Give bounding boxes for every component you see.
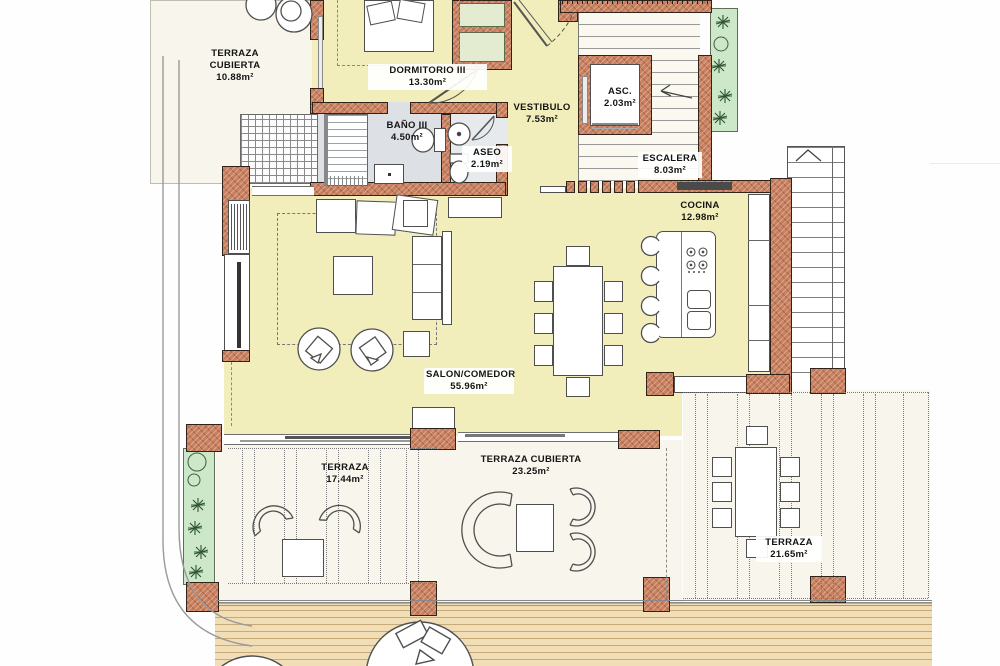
- threshold-vestibulo: [540, 186, 566, 193]
- dining-chair-w3: [534, 345, 553, 366]
- deck-wood: [215, 602, 932, 666]
- room-name: TERRAZA: [310, 462, 380, 474]
- sliding-door-leaf-1: [285, 436, 410, 439]
- exterior-stairs-rail: [832, 146, 833, 380]
- room-area: 12.98m²: [666, 212, 734, 224]
- deck-line: [242, 450, 243, 583]
- room-area: 4.50m²: [372, 132, 442, 144]
- wall-bath-north-a: [312, 102, 388, 114]
- pillar-terraza-este-n2: [810, 368, 846, 394]
- room-area: 8.03m²: [640, 165, 700, 177]
- outdoor-chair-w2: [712, 482, 732, 502]
- room-name: TERRAZA CUBIERTA: [470, 454, 592, 466]
- pergola-grid: [240, 114, 318, 184]
- floor-terrazas-sur: [216, 440, 682, 602]
- room-name: SALON/COMEDOR: [426, 369, 512, 381]
- island-sink-1: [687, 290, 711, 309]
- terraza-este-dashed-west: [666, 448, 667, 598]
- pier-salon-south-1: [410, 428, 456, 450]
- dining-chair-w1: [534, 281, 553, 302]
- room-label-bano: BAÑO III 4.50m²: [372, 120, 442, 144]
- wall-cocina-south-block: [646, 372, 674, 396]
- room-label-escalera: ESCALERA 8.03m²: [638, 152, 702, 178]
- room-name: VESTIBULO: [508, 102, 576, 114]
- sink-bano-drain: [388, 173, 391, 176]
- sofa-east-back: [442, 231, 452, 325]
- pillar-terrace-nw: [186, 424, 222, 452]
- room-name: BAÑO III: [372, 120, 442, 132]
- pier-comb-3: [590, 181, 599, 193]
- room-name: ESCALERA: [640, 153, 700, 165]
- room-label-aseo: ASEO 2.19m²: [462, 146, 512, 172]
- island-divider: [681, 232, 682, 337]
- room-label-dormitorio: DORMITORIO III 13.30m²: [368, 64, 487, 90]
- elevator-door-line-2: [592, 128, 638, 129]
- dining-chair-w2: [534, 313, 553, 334]
- room-area: 13.30m²: [370, 77, 485, 89]
- room-area: 2.19m²: [464, 159, 510, 171]
- room-label-ascensor: ASC. 2.03m²: [598, 86, 642, 110]
- room-name: ASEO: [464, 147, 510, 159]
- elevator-guide: [582, 76, 588, 124]
- island-sink-2: [687, 311, 711, 330]
- outdoor-chair-w1: [712, 457, 732, 477]
- dining-chair-e3: [604, 345, 623, 366]
- deck-edge-line: [215, 605, 932, 606]
- outdoor-dining-table: [735, 447, 777, 537]
- counter-cocina-east: [748, 194, 770, 372]
- pier-comb-5: [614, 181, 623, 193]
- dining-chair-e2: [604, 313, 623, 334]
- elevator-door-line-1: [592, 123, 638, 125]
- pier-comb-1: [566, 181, 575, 193]
- room-area: 2.03m²: [598, 98, 642, 110]
- dining-chair-e1: [604, 281, 623, 302]
- pier-comb-4: [602, 181, 611, 193]
- room-area: 55.96m²: [426, 381, 512, 393]
- planter-left: [183, 448, 215, 585]
- room-area: 7.53m²: [508, 114, 576, 126]
- terrace-table-c: [516, 504, 554, 552]
- sliding-door-leaf-2: [240, 440, 410, 442]
- closet-1: [459, 3, 505, 27]
- sideboard-salon-south: [412, 407, 455, 430]
- sofa-east: [412, 236, 442, 320]
- chimney-line: [237, 262, 241, 348]
- terrace-table-w: [282, 539, 324, 577]
- deck-line: [406, 450, 407, 583]
- deck-line: [863, 394, 864, 598]
- outdoor-chair-e2: [780, 482, 800, 502]
- page-fold-line: [930, 163, 1000, 164]
- room-label-cocina: COCINA 12.98m²: [666, 200, 734, 224]
- pier-salon-south-2: [618, 430, 660, 449]
- outdoor-chair-n: [746, 426, 768, 445]
- deck-line: [707, 394, 708, 598]
- wall-cocina-east: [770, 178, 792, 394]
- deck-line: [903, 394, 904, 598]
- room-area: 10.88m²: [192, 72, 278, 84]
- wall-top-ticks: [562, 0, 710, 4]
- deck-line: [821, 394, 822, 598]
- deck-dots-e-top: [683, 392, 928, 393]
- floor-plan: TERRAZA CUBIERTA 10.88m² DORMITORIO III …: [0, 0, 1000, 666]
- room-label-terraza-este: TERRAZA 21.65m²: [756, 536, 822, 562]
- room-label-terraza-cubierta-2: TERRAZA CUBIERTA 23.25m²: [470, 454, 592, 478]
- pier-comb-2: [578, 181, 587, 193]
- window-salon-northwest: [252, 186, 314, 196]
- room-label-terraza-cubierta-1: TERRAZA CUBIERTA 10.88m²: [192, 48, 278, 84]
- outdoor-chair-w3: [712, 508, 732, 528]
- exterior-stairs: [787, 146, 845, 380]
- deck-line: [833, 394, 834, 598]
- counter-divider-3: [748, 340, 770, 341]
- sliding-door-leaf-3: [465, 434, 565, 437]
- dining-chair-n: [566, 246, 590, 266]
- deck-dots-e-bottom: [683, 598, 928, 599]
- wall-bath-north-b: [410, 102, 508, 114]
- room-name: ASC.: [598, 86, 642, 98]
- deck-line: [254, 450, 255, 583]
- deck-line: [875, 394, 876, 598]
- shower-tile-band: [326, 176, 366, 186]
- console-table: [448, 197, 502, 218]
- closet-2: [459, 32, 505, 62]
- deck-dots-e-right: [928, 392, 929, 598]
- dining-table: [553, 266, 603, 376]
- bed-dashed-zone: [337, 0, 460, 66]
- deck-line: [695, 394, 696, 598]
- room-name: TERRAZA CUBIERTA: [192, 48, 278, 72]
- deck-line: [380, 450, 381, 583]
- room-label-vestibulo: VESTIBULO 7.53m²: [508, 102, 576, 126]
- counter-divider-2: [748, 305, 770, 306]
- room-label-terraza-oeste: TERRAZA 17.44m²: [310, 462, 380, 486]
- terrace-deck-line-1: [216, 600, 932, 601]
- radiator-hatch: [231, 204, 247, 250]
- sofa-east-cushion-1: [413, 264, 441, 265]
- room-name: COCINA: [666, 200, 734, 212]
- deck-dots-w-bottom: [228, 583, 437, 584]
- boundary-dashed-west: [231, 362, 232, 426]
- dining-chair-s: [566, 377, 590, 397]
- wall-aseo-east-a: [496, 102, 508, 118]
- pillar-deck-1: [410, 581, 437, 616]
- sofa-east-cushion-2: [413, 292, 441, 293]
- outdoor-chair-e1: [780, 457, 800, 477]
- pillar-terraza-este-n1: [746, 374, 790, 394]
- room-area: 23.25m²: [470, 466, 592, 478]
- coffee-table: [333, 256, 373, 295]
- cocina-north-appliance: [677, 182, 732, 190]
- pillar-terrace-sw: [186, 582, 219, 612]
- counter-divider-1: [748, 240, 770, 241]
- sofa-module-1: [316, 199, 356, 233]
- room-name: DORMITORIO III: [370, 65, 485, 77]
- side-square: [403, 200, 428, 227]
- room-name: TERRAZA: [758, 537, 820, 549]
- planter-top-right: [710, 8, 738, 132]
- room-area: 17.44m²: [310, 474, 380, 486]
- room-area: 21.65m²: [758, 549, 820, 561]
- room-label-salon: SALON/COMEDOR 55.96m²: [424, 368, 514, 394]
- pier-comb-6: [626, 181, 635, 193]
- sofa-module-2: [355, 200, 396, 235]
- deck-dots-w-top: [228, 448, 437, 449]
- wall-salon-west-stub: [222, 350, 250, 362]
- deck-line: [418, 450, 419, 583]
- outdoor-chair-e3: [780, 508, 800, 528]
- end-table: [403, 331, 430, 357]
